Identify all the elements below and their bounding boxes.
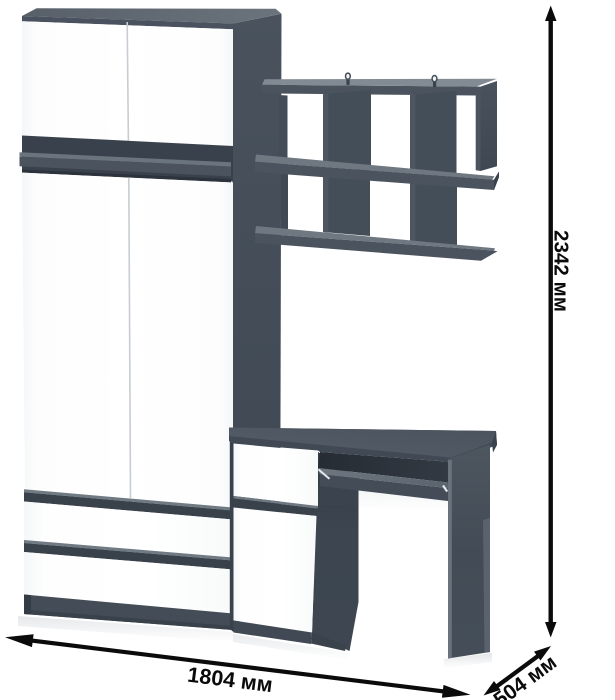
svg-text:2342 мм: 2342 мм xyxy=(550,230,573,312)
